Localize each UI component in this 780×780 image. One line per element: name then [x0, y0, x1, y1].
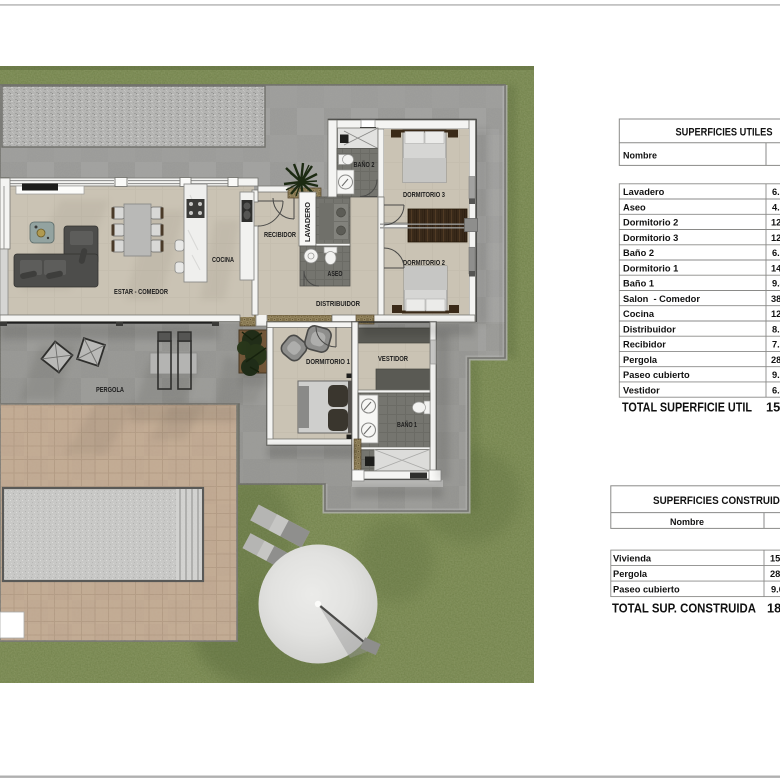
- svg-text:LAVADERO: LAVADERO: [305, 201, 312, 242]
- svg-text:DORMITORIO 3: DORMITORIO 3: [403, 192, 445, 199]
- svg-text:6.45: 6.45: [772, 385, 780, 395]
- svg-text:Recibidor: Recibidor: [623, 340, 666, 350]
- svg-text:DISTRIBUIDOR: DISTRIBUIDOR: [316, 301, 360, 308]
- svg-text:28.40: 28.40: [771, 355, 780, 365]
- svg-text:BAÑO 1: BAÑO 1: [397, 420, 417, 429]
- svg-text:7.75: 7.75: [772, 340, 780, 350]
- svg-text:Dormitorio 3: Dormitorio 3: [623, 233, 678, 243]
- svg-text:DORMITORIO 1: DORMITORIO 1: [306, 359, 350, 366]
- svg-text:14.65: 14.65: [771, 263, 780, 273]
- svg-text:BAÑO 2: BAÑO 2: [354, 160, 375, 169]
- svg-text:8.90: 8.90: [772, 324, 780, 334]
- svg-text:SUPERFICIES CONSTRUIDA: SUPERFICIES CONSTRUIDA: [653, 495, 780, 507]
- svg-text:ESTAR - COMEDOR: ESTAR - COMEDOR: [114, 289, 168, 296]
- svg-text:Baño 2: Baño 2: [623, 248, 654, 258]
- svg-text:154.95: 154.95: [766, 400, 780, 415]
- svg-text:12.60: 12.60: [771, 218, 780, 228]
- svg-text:38.75: 38.75: [771, 294, 780, 304]
- svg-text:Paseo cubierto: Paseo cubierto: [623, 370, 690, 380]
- svg-text:188.10: 188.10: [767, 601, 780, 616]
- svg-text:Nombre: Nombre: [670, 517, 704, 528]
- svg-text:Baño 1: Baño 1: [623, 279, 654, 289]
- svg-text:Nombre: Nombre: [623, 151, 657, 162]
- svg-text:Lavadero: Lavadero: [623, 187, 665, 197]
- svg-text:RECIBIDOR: RECIBIDOR: [264, 232, 296, 239]
- svg-text:12.55: 12.55: [771, 309, 780, 319]
- svg-text:VESTIDOR: VESTIDOR: [378, 356, 408, 363]
- svg-text:ASEO: ASEO: [328, 271, 343, 278]
- svg-text:Pergola: Pergola: [613, 569, 648, 579]
- svg-text:28.40: 28.40: [770, 569, 780, 579]
- svg-text:Paseo cubierto: Paseo cubierto: [613, 585, 680, 595]
- svg-text:Salon - Comedor: Salon - Comedor: [623, 294, 700, 304]
- svg-text:TOTAL SUPERFICIE UTIL: TOTAL SUPERFICIE UTIL: [622, 400, 752, 415]
- svg-text:Pergola: Pergola: [623, 355, 658, 365]
- svg-text:9.60: 9.60: [772, 370, 780, 380]
- svg-text:Distribuidor: Distribuidor: [623, 324, 676, 334]
- svg-text:9.60: 9.60: [771, 585, 780, 595]
- svg-text:Dormitorio 1: Dormitorio 1: [623, 263, 678, 273]
- svg-text:Vivienda: Vivienda: [613, 554, 652, 564]
- svg-text:SUPERFICIES UTILES: SUPERFICIES UTILES: [676, 127, 773, 139]
- svg-text:150.10: 150.10: [770, 554, 780, 564]
- svg-text:4.55: 4.55: [772, 202, 780, 212]
- svg-text:12.60: 12.60: [771, 233, 780, 243]
- svg-text:9.45: 9.45: [772, 279, 780, 289]
- svg-text:DORMITORIO 2: DORMITORIO 2: [403, 260, 445, 267]
- svg-text:Dormitorio 2: Dormitorio 2: [623, 218, 678, 228]
- svg-text:TOTAL SUP. CONSTRUIDA: TOTAL SUP. CONSTRUIDA: [612, 601, 756, 616]
- svg-text:Vestidor: Vestidor: [623, 385, 660, 395]
- svg-text:Cocina: Cocina: [623, 309, 655, 319]
- svg-text:6.10: 6.10: [772, 248, 780, 258]
- svg-text:PERGOLA: PERGOLA: [96, 387, 124, 394]
- svg-text:6.65: 6.65: [772, 187, 780, 197]
- svg-text:Aseo: Aseo: [623, 202, 646, 212]
- svg-text:COCINA: COCINA: [212, 257, 234, 264]
